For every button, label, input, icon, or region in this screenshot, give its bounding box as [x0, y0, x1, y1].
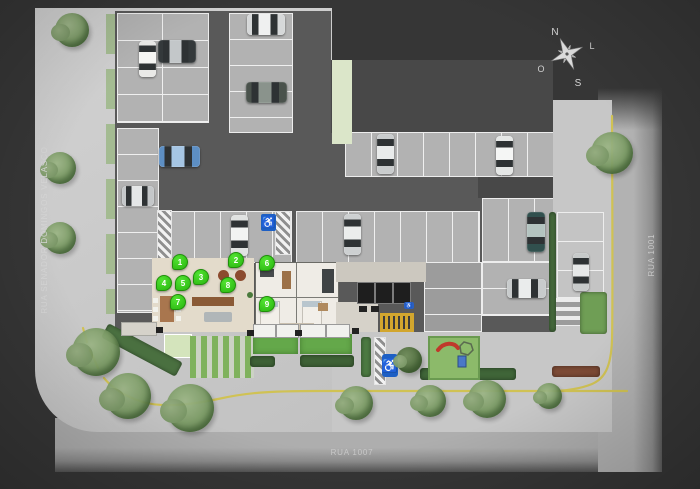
chair: [153, 316, 158, 321]
terrace: [253, 324, 276, 338]
wheelchair-icon: ♿: [406, 303, 412, 309]
sofa: [204, 312, 232, 322]
hedge: [549, 212, 556, 332]
car: [139, 41, 156, 77]
tree: [72, 328, 120, 376]
hedge: [250, 356, 275, 367]
wheelchair-icon: ♿: [262, 216, 276, 229]
plant: [247, 292, 253, 298]
car: [496, 136, 513, 175]
column: [352, 328, 359, 334]
parking-stalls: [117, 13, 209, 123]
street-label-right: RUA 1001: [647, 220, 659, 290]
building-roof: [331, 60, 553, 133]
storage-rooms: [424, 262, 482, 332]
amenity-marker-3[interactable]: 3: [193, 269, 209, 285]
tree: [396, 347, 422, 373]
table: [318, 303, 328, 311]
planted-wall: [332, 60, 352, 144]
column: [295, 330, 302, 336]
play-tower-blue: [458, 356, 466, 367]
slide-red: [438, 344, 458, 350]
flower-bed: [552, 366, 600, 377]
amenity-marker-6[interactable]: 6: [259, 255, 275, 271]
compass-rose: N L S O: [527, 12, 607, 96]
compass-east-label: L: [589, 41, 594, 51]
ramp-hatch: [157, 210, 172, 264]
wardrobe: [322, 269, 334, 293]
tree: [536, 383, 562, 409]
car: [246, 82, 287, 103]
street-label-left: RUA SENADOR DOMINGOS VELASCO: [40, 125, 52, 335]
compass-west-label: O: [537, 64, 544, 74]
corridor: [336, 262, 426, 282]
car: [344, 214, 361, 255]
hedge: [300, 355, 354, 367]
car: [507, 279, 546, 298]
amenity-marker-2[interactable]: 2: [228, 252, 244, 268]
street-label-bottom: RUA 1007: [292, 448, 412, 460]
compass-rose-icon: N L S O: [527, 12, 607, 96]
amenity-marker-5[interactable]: 5: [175, 275, 191, 291]
no-parking-hatch: [275, 211, 291, 255]
car: [122, 186, 154, 206]
tree: [414, 385, 446, 417]
staircase: [380, 313, 414, 332]
tree: [339, 386, 373, 420]
amenity-marker-8[interactable]: 8: [220, 277, 236, 293]
car: [158, 40, 196, 63]
elevator: [393, 282, 411, 304]
sandbox-hex: [460, 342, 473, 355]
round-table: [235, 270, 246, 281]
amenity-marker-4[interactable]: 4: [156, 275, 172, 291]
elevator: [375, 282, 393, 304]
tree: [591, 132, 633, 174]
terrace: [300, 324, 326, 338]
site-plan: ♿: [0, 0, 700, 489]
wall-hedge: [106, 14, 115, 314]
shaft: [359, 306, 367, 312]
accessible-route-sign: ♿: [404, 302, 414, 309]
car: [231, 215, 248, 256]
amenity-marker-1[interactable]: 1: [172, 254, 188, 270]
chair: [176, 316, 181, 321]
tree: [55, 13, 89, 47]
sofa: [282, 271, 291, 289]
playground-equipment: [430, 338, 478, 378]
car: [159, 146, 200, 167]
playground: [428, 336, 480, 380]
shaft: [371, 306, 379, 312]
compass-north-label: N: [551, 27, 558, 38]
garden-patch: [580, 292, 607, 334]
car: [247, 14, 285, 35]
striped-lawn: [190, 336, 254, 378]
column: [247, 330, 254, 336]
chair: [153, 298, 158, 303]
stair-treads: [383, 316, 411, 329]
tree: [468, 380, 506, 418]
car: [527, 212, 545, 252]
terrace: [326, 324, 350, 338]
parking-stalls: [296, 211, 480, 263]
chair: [153, 307, 158, 312]
compass-south-label: S: [575, 78, 582, 89]
amenity-marker-9[interactable]: 9: [259, 296, 275, 312]
entrance-steps: [121, 322, 157, 336]
hedge: [361, 337, 371, 377]
car: [377, 134, 394, 174]
car: [573, 253, 589, 291]
accessible-parking-sign: ♿: [261, 214, 276, 231]
column: [156, 327, 163, 333]
counter: [192, 297, 234, 306]
tree: [166, 384, 214, 432]
amenity-marker-7[interactable]: 7: [170, 294, 186, 310]
tree: [105, 373, 151, 419]
elevator: [357, 282, 375, 304]
